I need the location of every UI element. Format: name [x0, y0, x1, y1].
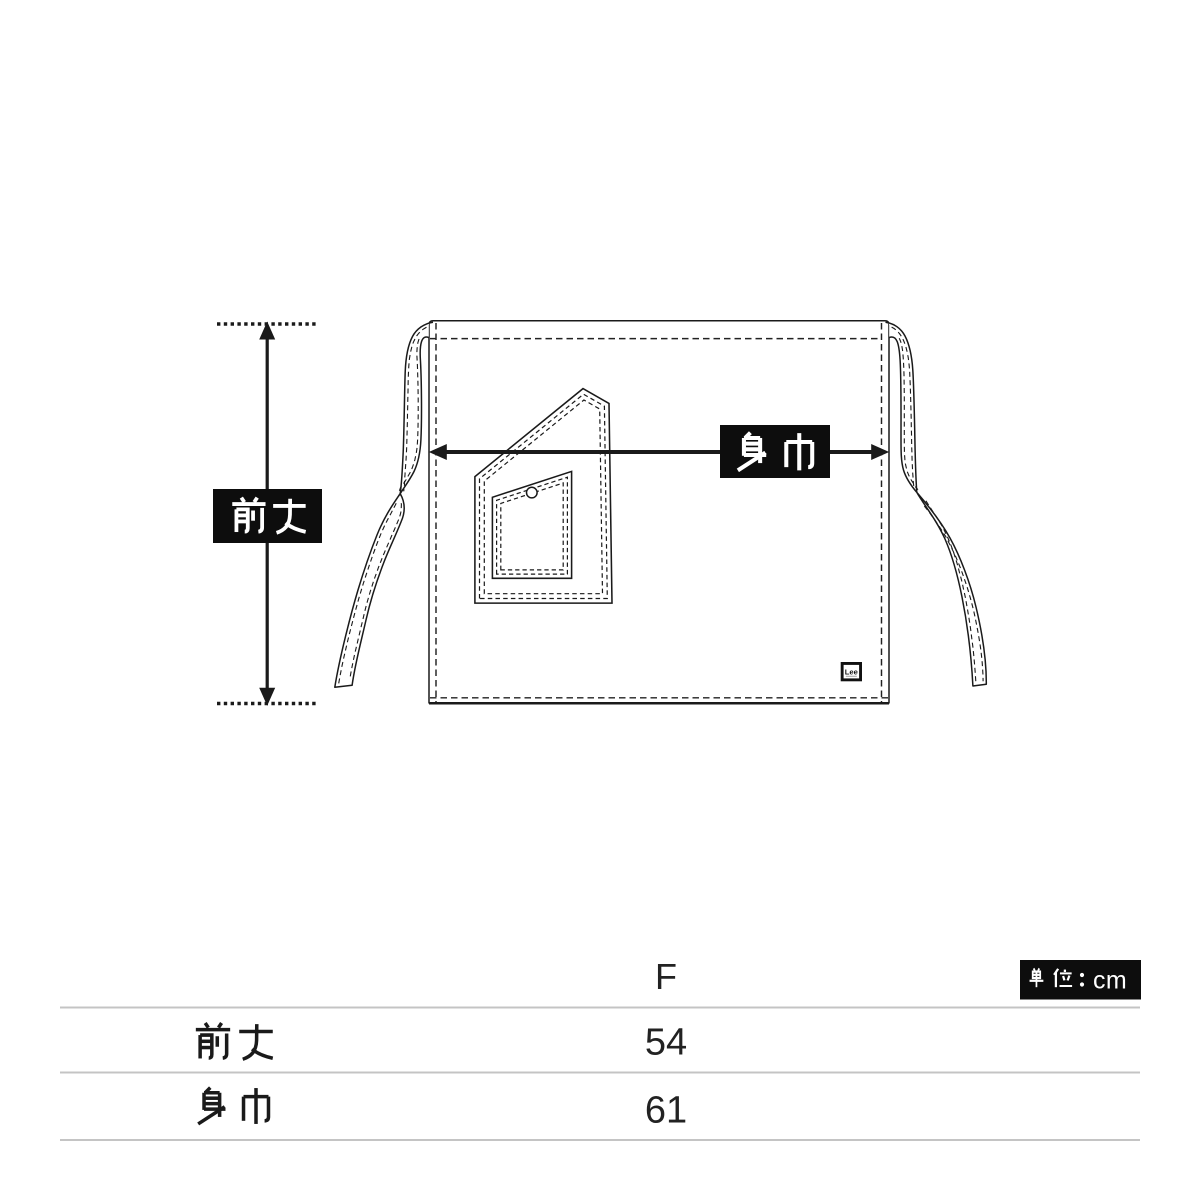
svg-text:cm: cm	[1093, 967, 1127, 995]
svg-text:54: 54	[645, 1022, 687, 1064]
svg-text:61: 61	[645, 1090, 687, 1132]
svg-text:F: F	[655, 956, 677, 997]
svg-text:Lee: Lee	[845, 668, 858, 677]
